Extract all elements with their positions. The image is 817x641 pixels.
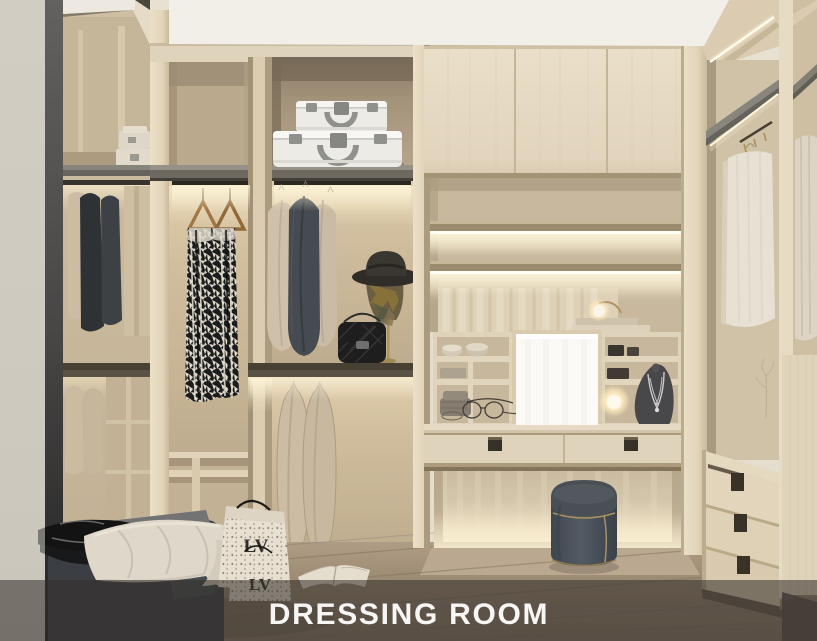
svg-text:DRESSING ROOM: DRESSING ROOM (269, 598, 549, 631)
